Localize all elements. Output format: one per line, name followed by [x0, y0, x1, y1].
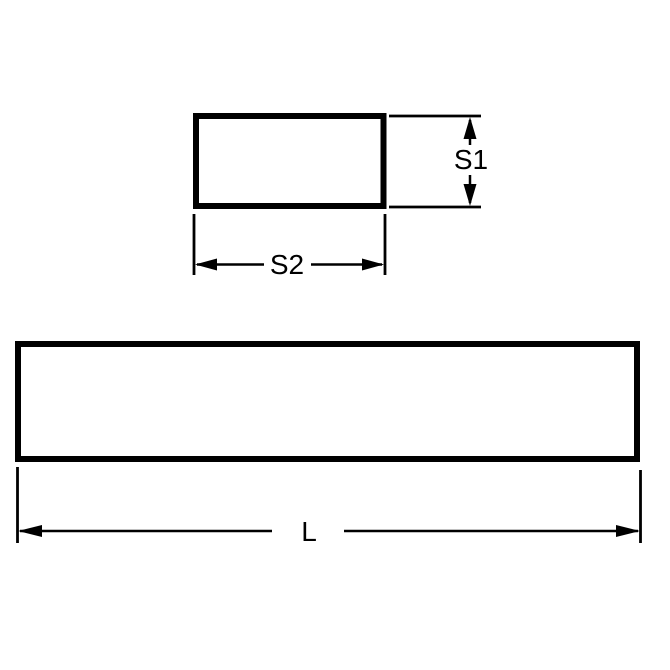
s1-arrowhead-up — [464, 117, 477, 139]
side-view: L — [18, 344, 641, 547]
s2-arrowhead-left — [195, 259, 217, 271]
s1-label: S1 — [454, 144, 488, 175]
s2-dimension: S2 — [194, 214, 385, 280]
s1-arrowhead-down — [464, 184, 477, 206]
l-label: L — [301, 516, 317, 547]
s1-dimension: S1 — [389, 116, 488, 207]
l-arrowhead-right — [616, 525, 640, 537]
bar-outline — [18, 344, 637, 459]
technical-drawing: S1 S2 L — [0, 0, 670, 670]
cross-section-view: S1 S2 — [194, 116, 488, 280]
l-arrowhead-left — [18, 525, 42, 537]
s2-arrowhead-right — [362, 259, 384, 271]
l-dimension: L — [18, 467, 641, 547]
s2-label: S2 — [270, 249, 304, 280]
cross-section-outline — [196, 116, 384, 206]
